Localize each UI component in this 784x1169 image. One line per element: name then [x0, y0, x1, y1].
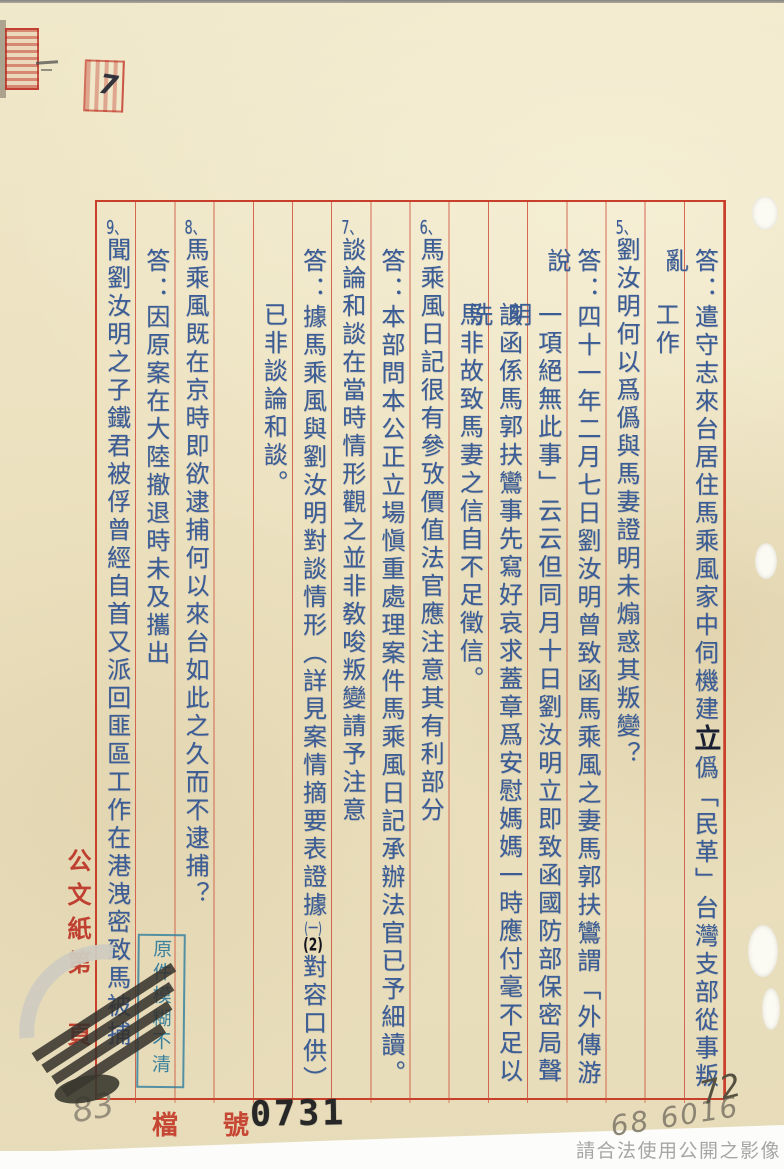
text-column: 工作 — [650, 302, 680, 358]
text-segment: 馬乘風既在京時即欲逮捕何以來台如此之久而不逮捕？ — [181, 237, 209, 909]
usage-notice-text: 請合法使用公開之影像 — [576, 1136, 781, 1163]
text-segment: 對容口供） — [299, 954, 327, 1094]
text-segment: 7、 — [341, 218, 363, 237]
text-segment: 答：本部問本公正立場愼重處理案件馬乘風日記承辦法官已予細讀。 — [377, 248, 405, 1088]
red-seal-icon — [5, 28, 39, 90]
text-column: 9、聞劉汝明之子鐵君被俘曾經自首又派回匪區工作在港洩密致馬被捕 — [102, 218, 132, 1049]
text-column: 該函係馬郭扶鸞事先寫好哀求蓋章爲安慰媽媽一時應付毫不足以洗 — [493, 302, 523, 1098]
text-segment: 立 — [689, 724, 720, 755]
text-column: 5、劉汝明何以爲僞與馬妻證明未煽惑其叛變？ — [611, 218, 641, 769]
text-segment: 答：據馬乘風與劉汝明對談情形（詳見案情摘要表證據 — [299, 248, 327, 920]
text-column: 答：四十一年二月七日劉汝明曾致函馬乘風之妻馬郭扶鸞謂「外傳游說 — [572, 248, 602, 1098]
text-segment: 6、 — [419, 218, 441, 237]
text-segment: 9、 — [106, 218, 128, 237]
text-column: 答：據馬乘風與劉汝明對談情形（詳見案情摘要表證據(一)(2)對容口供） — [298, 248, 328, 1094]
archive-watermark-logo — [15, 940, 215, 1110]
damage-spot — [762, 988, 780, 1030]
text-column: 一項絕無此事」云云但同月十日劉汝明立即致函國防部保密局聲明 — [533, 302, 563, 1098]
damage-spot — [755, 543, 777, 579]
text-column: 8、馬乘風既在京時即欲逮捕何以來台如此之久而不逮捕？ — [180, 218, 210, 909]
text-segment: 馬非故致馬妻之信自不足徵信。 — [455, 302, 483, 694]
text-column: 答：因原案在大陸撤退時未及攜出 — [141, 248, 171, 668]
text-column: 答：遣守志來台居住馬乘風家中伺機建立僞「民革」台灣支部從事叛亂 — [689, 248, 719, 1098]
text-column: 6、馬乘風日記很有參攷價值法官應注意其有利部分 — [415, 218, 445, 825]
text-segment: 8、 — [184, 218, 206, 237]
text-segment: 談論和談在當時情形觀之並非敎唆叛變請予注意 — [338, 237, 366, 825]
text-segment: (一) — [304, 920, 323, 936]
pencil-dash-2 — [41, 69, 52, 71]
text-column: 答：本部問本公正立場愼重處理案件馬乘風日記承辦法官已予細讀。 — [376, 248, 406, 1088]
text-segment: 5、 — [615, 218, 637, 237]
text-segment: 聞劉汝明之子鐵君被俘曾經自首又派回匪區工作在港洩密致馬被捕 — [103, 237, 131, 1049]
text-segment: 答：遣守志來台居住馬乘風家中伺機建 — [690, 248, 718, 724]
text-segment: 已非談論和談。 — [259, 302, 287, 498]
damage-spot — [752, 196, 778, 230]
text-column: 7、談論和談在當時情形觀之並非敎唆叛變請予注意 — [337, 218, 367, 825]
scanned-document: 答：遣守志來台居住馬乘風家中伺機建立僞「民革」台灣支部從事叛亂工作5、劉汝明何以… — [0, 0, 784, 1169]
text-segment: 劉汝明何以爲僞與馬妻證明未煽惑其叛變？ — [612, 237, 640, 769]
text-segment: 馬乘風日記很有參攷價值法官應注意其有利部分 — [416, 237, 444, 825]
text-segment: 工作 — [651, 302, 679, 358]
file-number-stamp: 0731 — [250, 1093, 347, 1135]
text-segment: (2) — [303, 936, 324, 954]
text-column: 馬非故致馬妻之信自不足徵信。 — [454, 302, 484, 694]
damage-spot — [748, 925, 778, 977]
text-column: 已非談論和談。 — [258, 302, 288, 498]
text-segment: 答：因原案在大陸撤退時未及攜出 — [142, 248, 170, 668]
